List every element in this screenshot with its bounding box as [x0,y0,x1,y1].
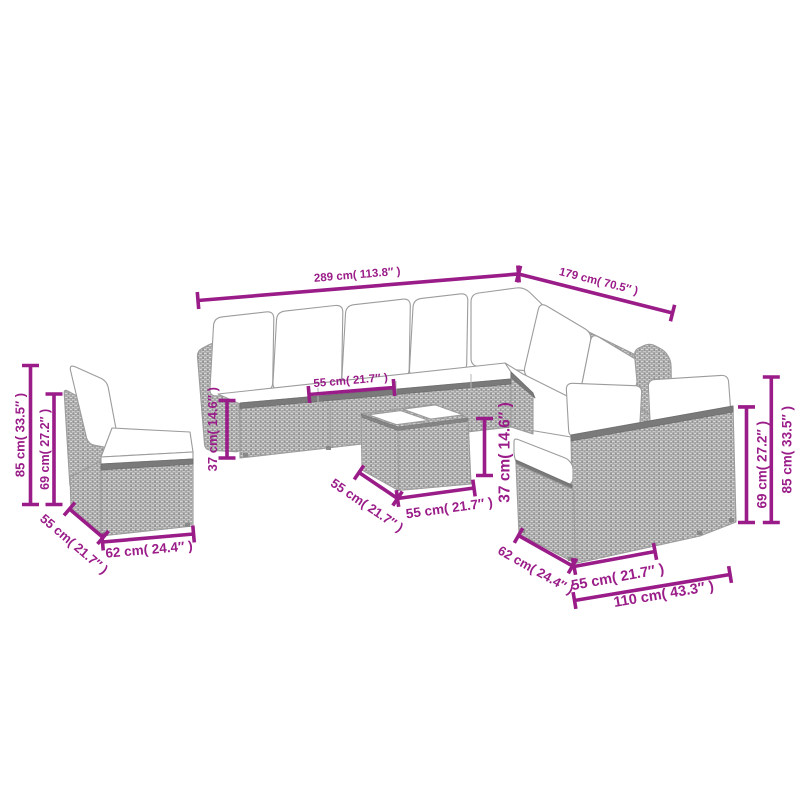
svg-text:85 cm( 33.5″ ): 85 cm( 33.5″ ) [779,406,794,494]
svg-text:69 cm( 27.2″ ): 69 cm( 27.2″ ) [38,409,52,490]
svg-text:85 cm( 33.5″ ): 85 cm( 33.5″ ) [13,393,28,477]
svg-text:37 cm( 14.6″ ): 37 cm( 14.6″ ) [497,402,514,502]
svg-text:37 cm( 14.6″ ): 37 cm( 14.6″ ) [205,387,220,471]
svg-text:69 cm( 27.2″ ): 69 cm( 27.2″ ) [755,421,770,509]
